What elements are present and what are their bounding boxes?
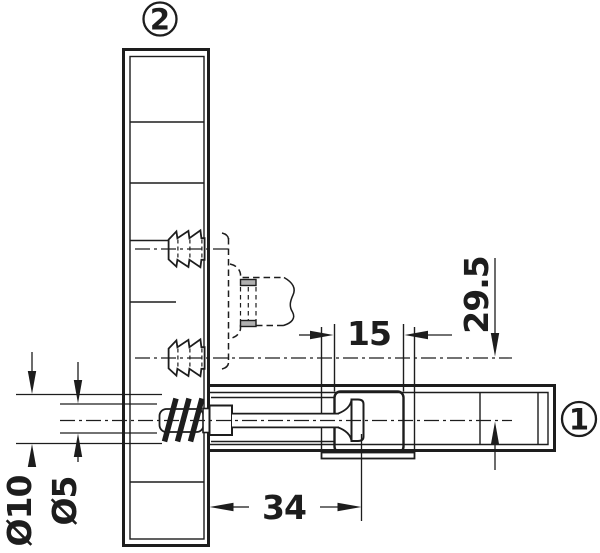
bolt-neck-flare-bottom [338, 427, 352, 441]
dim-d5-arrow-down [74, 380, 82, 404]
dim-34-arrow-right [338, 503, 362, 511]
dim-d10-arrow-down [28, 371, 36, 394]
cam-housing-rim [322, 453, 415, 459]
vertical-panel [124, 50, 209, 546]
dim-34-label: 34 [262, 488, 306, 527]
hidden-housing-outline [229, 238, 285, 364]
hidden-flange-top-hook [222, 233, 229, 239]
dim-34-arrow-left [210, 503, 234, 511]
dim-15-arrow-right [405, 331, 429, 339]
dim-29-5-label: 29.5 [457, 256, 496, 333]
balloon-part-1: 1 [562, 402, 596, 437]
balloon-part-1-label: 1 [569, 403, 589, 437]
dim-29-5-arrow-up [491, 422, 499, 446]
drawing-svg: 15 29.5 34 Ø10 Ø5 2 1 [0, 0, 600, 553]
dim-d5-arrow-up [74, 434, 82, 458]
technical-drawing-canvas: 15 29.5 34 Ø10 Ø5 2 1 [0, 0, 600, 553]
balloon-part-2-label: 2 [150, 3, 170, 37]
hidden-cam-slot [241, 280, 257, 327]
dim-15-label: 15 [347, 314, 391, 353]
cam-housing-body [335, 392, 404, 453]
dim-29-5-arrow-down [491, 333, 499, 357]
break-line-wave [284, 278, 295, 326]
bolt-neck-flare-top [338, 400, 352, 414]
balloon-part-2: 2 [144, 3, 177, 37]
vertical-panel-outer-edge [124, 50, 209, 546]
dim-d10-label: Ø10 [0, 475, 39, 546]
horizontal-panel-core-lines [480, 393, 538, 445]
dim-d10-arrow-up [28, 444, 36, 467]
hidden-flange-bottom-hook [222, 363, 229, 369]
hidden-housing-front-view [222, 233, 294, 369]
dim-d5-label: Ø5 [45, 476, 84, 525]
